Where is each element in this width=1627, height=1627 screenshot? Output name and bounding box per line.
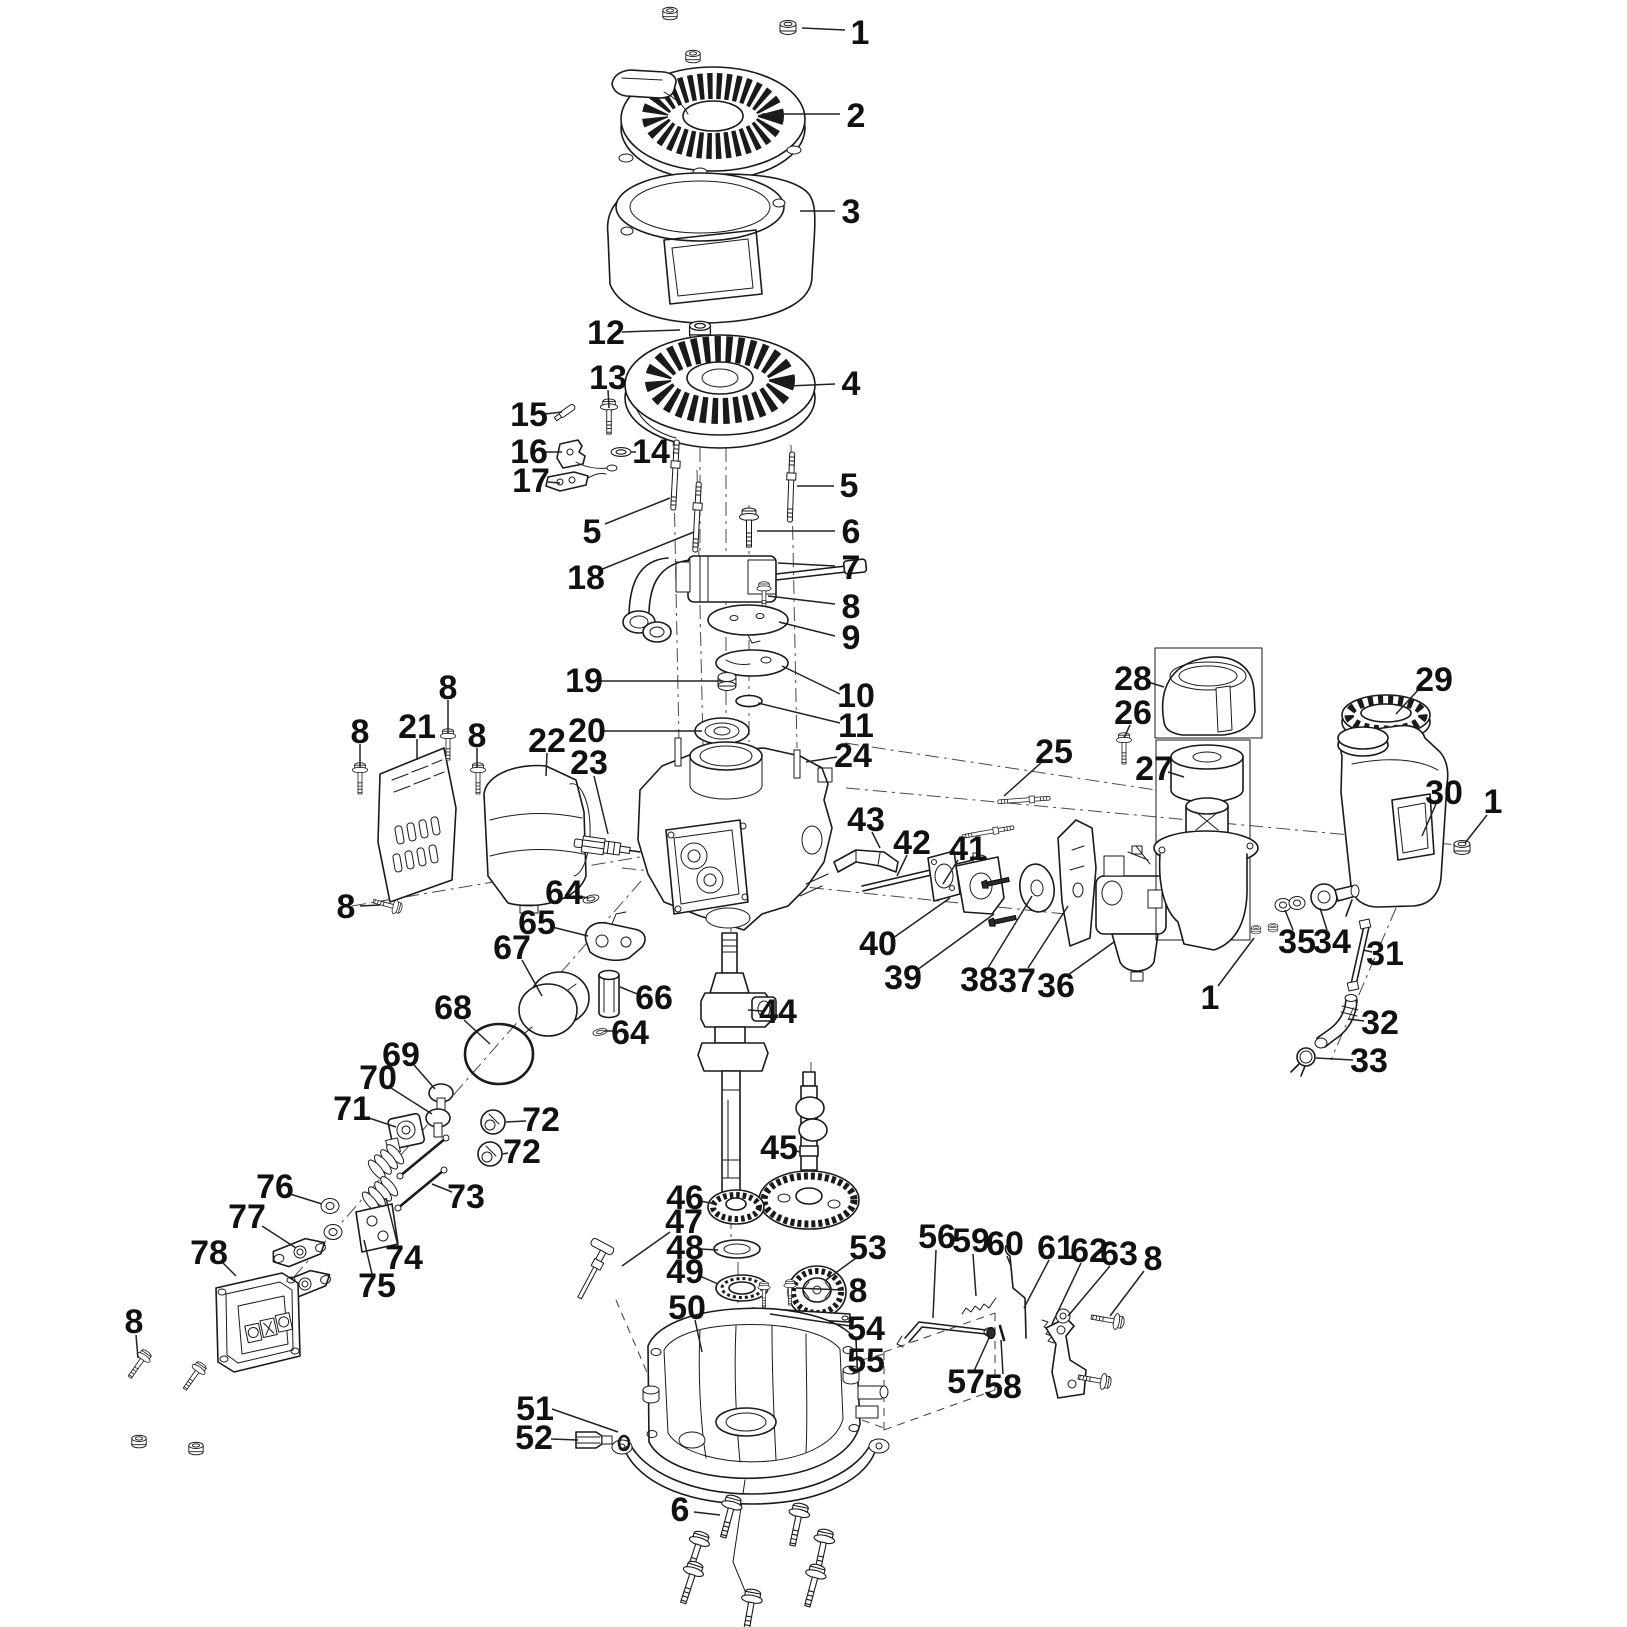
spring-retainers <box>478 1110 505 1166</box>
callout-leader-56-82 <box>933 1250 936 1318</box>
part-number-52: 52 <box>515 1419 553 1457</box>
callout-leader-8-15 <box>768 596 835 604</box>
part-number-7: 7 <box>842 549 861 587</box>
part-number-78: 78 <box>190 1234 228 1272</box>
part-number-59: 59 <box>952 1222 990 1260</box>
part-number-27: 27 <box>1135 750 1173 788</box>
callout-leader-76-63 <box>290 1194 322 1204</box>
timing-gear <box>708 1190 764 1224</box>
exploded-parts-diagram: 1231213415161417556187891910201124222343… <box>0 0 1627 1627</box>
recoil-starter <box>612 67 805 180</box>
o-ring <box>592 1027 607 1036</box>
part-number-4: 4 <box>842 365 861 403</box>
part-number-9: 9 <box>842 619 861 657</box>
oil-dipstick <box>565 1237 614 1301</box>
flywheel <box>625 335 815 448</box>
part-number-8: 8 <box>351 713 370 751</box>
part-number-75: 75 <box>358 1267 396 1305</box>
valve-cover <box>216 1273 300 1372</box>
callout-leader-52-80 <box>551 1439 578 1440</box>
part-number-26: 26 <box>1114 694 1152 732</box>
part-number-50: 50 <box>668 1289 706 1327</box>
blower-housing <box>608 173 815 323</box>
part-number-1: 1 <box>1201 979 1220 1017</box>
sump-bolts <box>673 1493 836 1627</box>
part-number-71: 71 <box>333 1090 371 1128</box>
callout-leader-7-14 <box>778 563 835 566</box>
part-number-8: 8 <box>1144 1240 1163 1278</box>
part-number-6: 6 <box>842 513 861 551</box>
callout-leader-51-79 <box>552 1409 618 1432</box>
part-number-32: 32 <box>1361 1004 1399 1042</box>
cover-bolt <box>179 1359 209 1393</box>
part-number-68: 68 <box>434 989 472 1027</box>
cover-bolt <box>124 1347 154 1381</box>
part-number-58: 58 <box>984 1368 1022 1406</box>
part-number-55: 55 <box>847 1342 885 1380</box>
part-number-30: 30 <box>1425 774 1463 812</box>
part-number-67: 67 <box>493 929 531 967</box>
callout-leader-12-3 <box>622 330 680 332</box>
part-number-28: 28 <box>1114 660 1152 698</box>
part-number-33: 33 <box>1350 1042 1388 1080</box>
callout-leader-61-85 <box>1024 1260 1049 1308</box>
part-number-34: 34 <box>1313 923 1351 961</box>
oil-fill-tube <box>599 971 619 1018</box>
cover-nut <box>189 1442 203 1455</box>
part-number-13: 13 <box>589 359 627 397</box>
oil-seal <box>695 718 749 744</box>
part-number-22: 22 <box>528 722 566 760</box>
tank-grommets <box>1251 924 1278 934</box>
part-number-49: 49 <box>666 1253 704 1291</box>
callout-leader-37-42 <box>1028 906 1068 968</box>
callout-leader-5-11 <box>605 498 670 524</box>
part-number-6: 6 <box>671 1491 690 1529</box>
part-number-1: 1 <box>1484 783 1503 821</box>
part-number-43: 43 <box>847 801 885 839</box>
part-number-60: 60 <box>986 1225 1024 1263</box>
part-number-40: 40 <box>859 925 897 963</box>
callout-leader-9-16 <box>779 622 835 636</box>
retaining-ring <box>465 1024 533 1084</box>
part-number-38: 38 <box>960 961 998 999</box>
callout-leader-24-21 <box>806 757 837 762</box>
part-number-31: 31 <box>1366 935 1404 973</box>
part-number-24: 24 <box>834 737 872 775</box>
rocker-washers <box>321 1199 342 1240</box>
head-plate <box>708 605 788 643</box>
part-number-8: 8 <box>337 888 356 926</box>
callout-leader-65-51 <box>552 927 588 936</box>
part-number-8: 8 <box>439 669 458 707</box>
callout-leader-23-23 <box>594 776 608 834</box>
fuel-hose <box>1315 995 1358 1049</box>
intake-tube <box>834 850 898 872</box>
fuel-valve-washers <box>1275 897 1305 912</box>
clip-washer <box>987 1328 995 1339</box>
callout-leader-40-39 <box>893 898 950 938</box>
part-number-29: 29 <box>1415 661 1453 699</box>
air-filter-element <box>1171 745 1243 802</box>
part-number-2: 2 <box>847 97 866 135</box>
parts-layer <box>124 7 1470 1627</box>
o-ring <box>582 893 600 904</box>
part-number-8: 8 <box>468 717 487 755</box>
part-number-66: 66 <box>635 979 673 1017</box>
top-mount-nuts <box>663 7 796 63</box>
cylinder-head-studs <box>669 440 797 552</box>
part-number-21: 21 <box>398 708 436 746</box>
fuel-valve <box>1311 884 1359 910</box>
part-number-3: 3 <box>842 193 861 231</box>
part-number-8: 8 <box>125 1303 144 1341</box>
part-number-42: 42 <box>893 824 931 862</box>
callout-leader-6-81 <box>694 1512 720 1515</box>
governor-arm-assembly <box>585 912 645 960</box>
callout-leader-11-20 <box>758 703 840 723</box>
part-number-57: 57 <box>947 1363 985 1401</box>
part-number-35: 35 <box>1278 923 1316 961</box>
piston-ring-set <box>519 972 589 1036</box>
ignition-coil <box>676 556 867 611</box>
shield-bolt <box>470 763 485 794</box>
carburetor-gasket <box>1017 862 1057 914</box>
heat-shield-plate <box>1058 820 1096 946</box>
part-number-53: 53 <box>849 1229 887 1267</box>
drain-bolt <box>576 1432 612 1448</box>
part-number-1: 1 <box>851 14 870 52</box>
part-number-56: 56 <box>918 1218 956 1256</box>
callout-leader-33-48 <box>1316 1058 1353 1060</box>
part-number-18: 18 <box>567 559 605 597</box>
part-number-17: 17 <box>512 462 550 500</box>
float-bowl <box>1112 934 1158 971</box>
callout-leader-47-71 <box>622 1232 670 1266</box>
part-number-19: 19 <box>565 662 603 700</box>
callout-leader-10-18 <box>782 666 840 694</box>
muffler-heat-shield <box>378 748 456 902</box>
part-number-37: 37 <box>998 962 1036 1000</box>
valve-lifters <box>426 1084 453 1137</box>
shroud-bolt <box>740 508 759 547</box>
callout-leader-1-0 <box>802 28 845 30</box>
bracket-bolt <box>1090 1309 1125 1331</box>
part-number-23: 23 <box>570 744 608 782</box>
thrust-washer <box>714 1240 760 1258</box>
small-gasket <box>736 696 762 707</box>
part-number-45: 45 <box>760 1129 798 1167</box>
part-number-72: 72 <box>503 1133 541 1171</box>
stop-switch <box>546 472 606 491</box>
sump-plug-left <box>643 1386 659 1403</box>
callout-leader-77-64 <box>262 1226 296 1248</box>
cover-nut <box>132 1435 146 1448</box>
part-number-64: 64 <box>611 1014 649 1052</box>
part-number-8: 8 <box>849 1272 868 1310</box>
air-filter-cover <box>1163 657 1255 735</box>
part-number-39: 39 <box>884 959 922 997</box>
part-number-77: 77 <box>228 1198 266 1236</box>
part-number-36: 36 <box>1037 967 1075 1005</box>
part-number-15: 15 <box>510 396 548 434</box>
part-number-41: 41 <box>949 830 987 868</box>
tank-nut <box>1454 841 1470 855</box>
coil-bracket <box>557 440 617 471</box>
callout-leader-59-83 <box>973 1254 976 1296</box>
part-number-12: 12 <box>587 314 625 352</box>
part-number-14: 14 <box>632 433 670 471</box>
part-number-44: 44 <box>759 993 797 1031</box>
cylinder-block <box>638 738 832 930</box>
part-number-5: 5 <box>583 513 602 551</box>
control-bracket <box>1046 1318 1086 1398</box>
part-number-5: 5 <box>840 467 859 505</box>
cotter-pin <box>1000 1326 1004 1340</box>
part-number-73: 73 <box>447 1178 485 1216</box>
callout-leader-8-88 <box>1110 1271 1144 1316</box>
part-number-63: 63 <box>1100 1235 1138 1273</box>
washer <box>611 448 631 457</box>
governor-spring <box>962 1298 996 1314</box>
hose-clamp <box>1291 1048 1315 1076</box>
callout-leader-8-29 <box>360 905 380 906</box>
part-number-25: 25 <box>1035 733 1073 771</box>
callout-leader-63-87 <box>1068 1266 1110 1316</box>
callout-leader-70-58 <box>391 1088 432 1114</box>
engine-exploded-view: 1231213415161417556187891910201124222343… <box>0 0 1627 1627</box>
